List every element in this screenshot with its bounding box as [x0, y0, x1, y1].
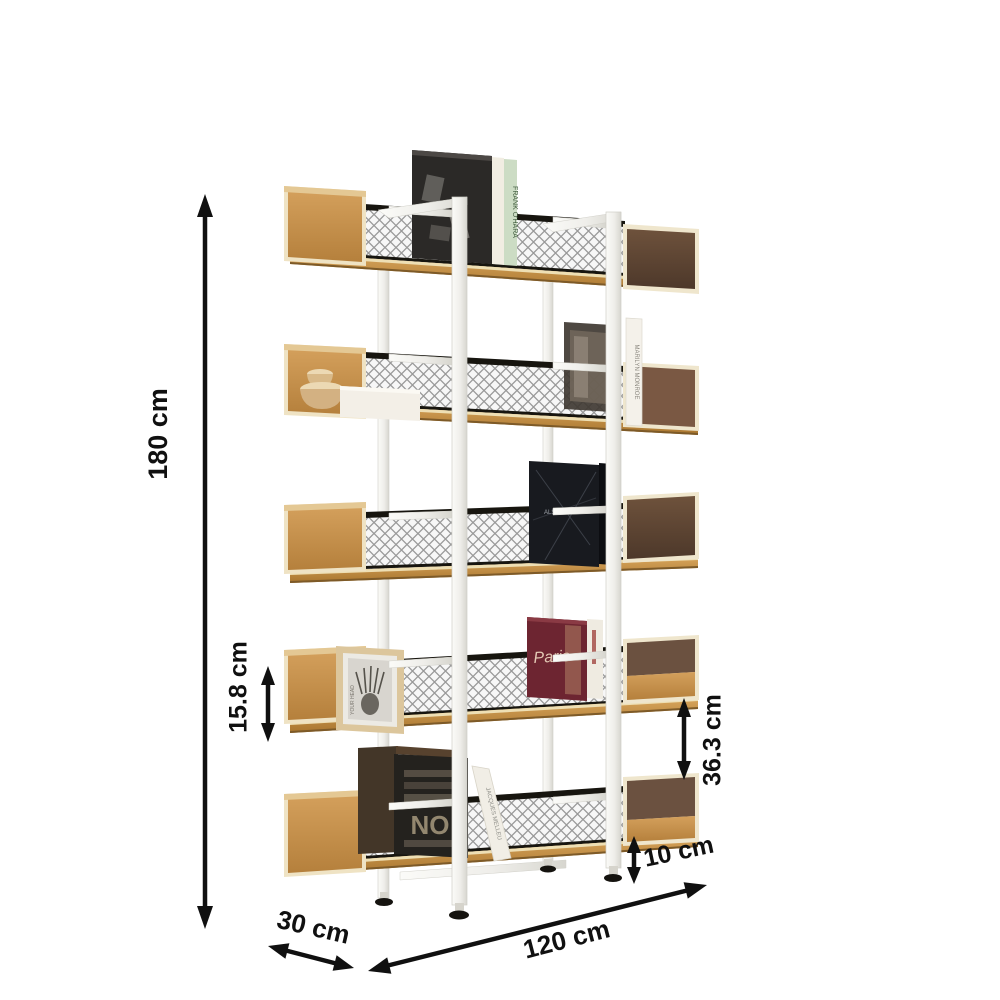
- side-box-3-left: [284, 502, 366, 574]
- marilyn-book: MARILYN MONROE: [626, 318, 642, 426]
- product-dimension-diagram: FRANK O'HARA MARILYN MONROE: [0, 0, 1000, 1000]
- height-dimension-label: 180 cm: [143, 388, 173, 480]
- poetry-book-spine-text: FRANK O'HARA: [511, 186, 518, 238]
- shelf-gap-dimension: 36.3 cm: [677, 694, 727, 786]
- bookshelf-diagram-svg: FRANK O'HARA MARILYN MONROE: [0, 0, 1000, 1000]
- photo-frame: YOUR HEAD: [336, 646, 404, 734]
- shelf-gap-dimension-label: 36.3 cm: [699, 694, 727, 786]
- side-box-1-right: [623, 224, 699, 294]
- white-book: [492, 157, 504, 265]
- poetry-book: FRANK O'HARA: [504, 159, 518, 266]
- side-box-3-right: [623, 492, 699, 563]
- photo-frame-caption: YOUR HEAD: [350, 685, 356, 715]
- side-box-1-left: [284, 186, 366, 266]
- side-box-4-right: [623, 635, 699, 704]
- side-box-5-left: [284, 790, 366, 877]
- marilyn-book-spine-text: MARILYN MONROE: [633, 345, 639, 400]
- white-storage-box: [340, 386, 420, 421]
- typography-book-cover-text: NO: [411, 810, 450, 840]
- box-height-dimension-label: 15.8 cm: [225, 641, 253, 733]
